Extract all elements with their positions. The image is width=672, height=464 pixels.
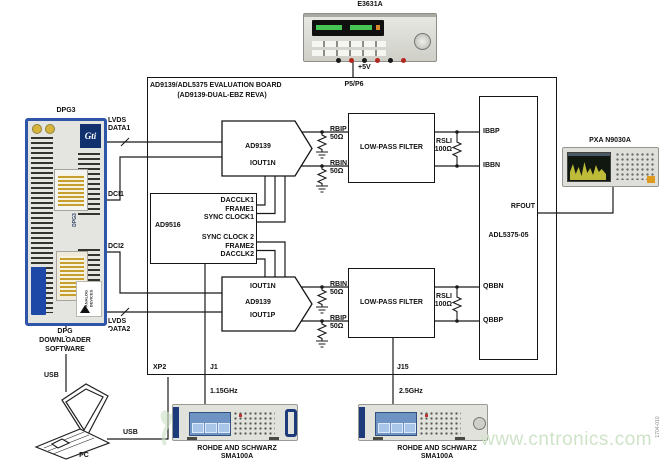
laptop-touchpad [52, 439, 69, 448]
watermark-text: www.cntronics.com [481, 429, 652, 451]
dpg-software-label: DPG [20, 328, 110, 336]
laptop-drawing [36, 384, 109, 459]
pc-label: PC [74, 452, 94, 460]
ad9516-pin-frame2: FRAME2 [148, 243, 254, 251]
analyzer-pxa-n9030a [562, 147, 659, 187]
adi-triangle-icon [80, 305, 90, 313]
gen-screen [189, 412, 231, 436]
spectrum-trace [570, 160, 606, 180]
figure-code: 1704-010 [655, 399, 661, 455]
dpg3-board-photo: Gti DPG3 ANALOG DEVICES [25, 118, 107, 326]
adl-pin-ibbn: IBBN [483, 162, 500, 170]
dci1-label: DCI1 [108, 191, 124, 199]
adl-pin-qbbn: QBBN [483, 283, 504, 291]
gen1-model-label: SMA100A [167, 453, 307, 461]
adl-pin-ibbp: IBBP [483, 128, 500, 136]
gen2-model-label: SMA100A [367, 453, 507, 461]
dac-top-name: AD9139 [227, 143, 289, 151]
signal-generator-2 [358, 404, 488, 441]
dpg3-title: DPG3 [33, 107, 99, 115]
board-title-line2: (AD9139-DUAL-EBZ REVA) [146, 92, 298, 100]
rbip-top-value: 50Ω [330, 134, 343, 142]
rbip-bottom-value: 50Ω [330, 323, 343, 331]
lvds-data1-label: LVDS [108, 117, 126, 125]
gen1-freq-label: 1.15GHz [210, 388, 238, 396]
bus-slash-marks [121, 138, 129, 316]
xp2-label: XP2 [153, 364, 166, 372]
gen2-freq-label: 2.5GHz [399, 388, 423, 396]
psu-handle-strip [304, 14, 436, 17]
gen-side-panel [359, 407, 365, 438]
psu-display [312, 20, 384, 36]
ad9516-pin-syncclock2: SYNC CLOCK 2 [148, 234, 254, 242]
rbin-bottom-value: 50Ω [330, 289, 343, 297]
sma-connector-icon [32, 124, 42, 134]
laptop-screen [62, 384, 108, 438]
psu-display-digits [316, 25, 342, 30]
dac-top-iout1n: IOUT1N [250, 160, 276, 168]
analyzer-model-label: PXA N9030A [560, 137, 660, 145]
gti-logo: Gti [80, 124, 101, 148]
ad9516-pin-syncclock1: SYNC CLOCK1 [148, 214, 254, 222]
signal-generator-1 [172, 404, 298, 441]
rbin-top-label: RBIN [330, 160, 347, 168]
lowpass-filter-bottom-label: LOW-PASS FILTER [349, 299, 434, 307]
j1-label: J1 [210, 364, 218, 372]
plus5v-label: +5V [358, 64, 371, 72]
rbin-bottom-label: RBIN [330, 281, 347, 289]
dac-bottom-iout1p: IOUT1P [250, 312, 275, 320]
dpg-gold-connector [54, 169, 88, 211]
p5p6-label: P5/P6 [332, 81, 376, 89]
rbin-top-value: 50Ω [330, 168, 343, 176]
dci2-label: DCI2 [108, 243, 124, 251]
psu-buttons-row [312, 50, 386, 56]
ad9516-name: AD9516 [155, 222, 181, 230]
lvds-data1-label: DATA1 [108, 125, 130, 133]
adl-pin-rfout: RFOUT [495, 203, 535, 211]
dpg-software-label: SOFTWARE [20, 346, 110, 354]
dac-bottom-name: AD9139 [227, 299, 289, 307]
lowpass-filter-top-label: LOW-PASS FILTER [349, 144, 434, 152]
usb-top-label: USB [44, 372, 59, 380]
psu-buttons-row [312, 41, 386, 47]
usb-bottom-label: USB [123, 429, 138, 437]
dpg-software-label: DOWNLOADER [20, 337, 110, 345]
gen1-brand-label: ROHDE AND SCHWARZ [167, 445, 307, 453]
ad9516-pin-frame1: FRAME1 [148, 206, 254, 214]
laptop-base [36, 429, 109, 459]
psu-terminals [336, 58, 406, 63]
power-supply-e3631a [303, 13, 437, 62]
lvds-data2-label: LVDS [108, 318, 126, 326]
diagram-canvas: www.cntronics.com 1704-010 [0, 0, 672, 464]
analyzer-screen [567, 152, 611, 182]
gen-side-panel [173, 407, 179, 438]
gen-handle [285, 409, 297, 437]
board-title-line1: AD9139/ADL5375 EVALUATION BOARD [150, 82, 282, 90]
rbip-top-label: RBIP [330, 126, 347, 134]
sma-connector-icon [45, 124, 55, 134]
analog-devices-logo: ANALOG DEVICES [76, 281, 102, 317]
adl-name: ADL5375-05 [479, 232, 538, 240]
gen-screen [375, 412, 417, 436]
adl-pin-qbbp: QBBP [483, 317, 503, 325]
analyzer-orange-key [647, 176, 655, 183]
rbip-bottom-label: RBIP [330, 315, 347, 323]
ad9516-pin-dacclk2: DACCLK2 [148, 251, 254, 259]
ad9516-pin-dacclk1: DACCLK1 [148, 197, 254, 205]
j15-label: J15 [397, 364, 409, 372]
lvds-data2-label: DATA2 [108, 326, 130, 334]
dac-bottom-iout1n: IOUT1N [250, 283, 276, 291]
dpg-blue-label [31, 267, 46, 315]
psu-knob [414, 33, 431, 50]
psu-model-label: E3631A [305, 1, 435, 9]
dpg-board-marking: DPG3 [72, 213, 78, 227]
